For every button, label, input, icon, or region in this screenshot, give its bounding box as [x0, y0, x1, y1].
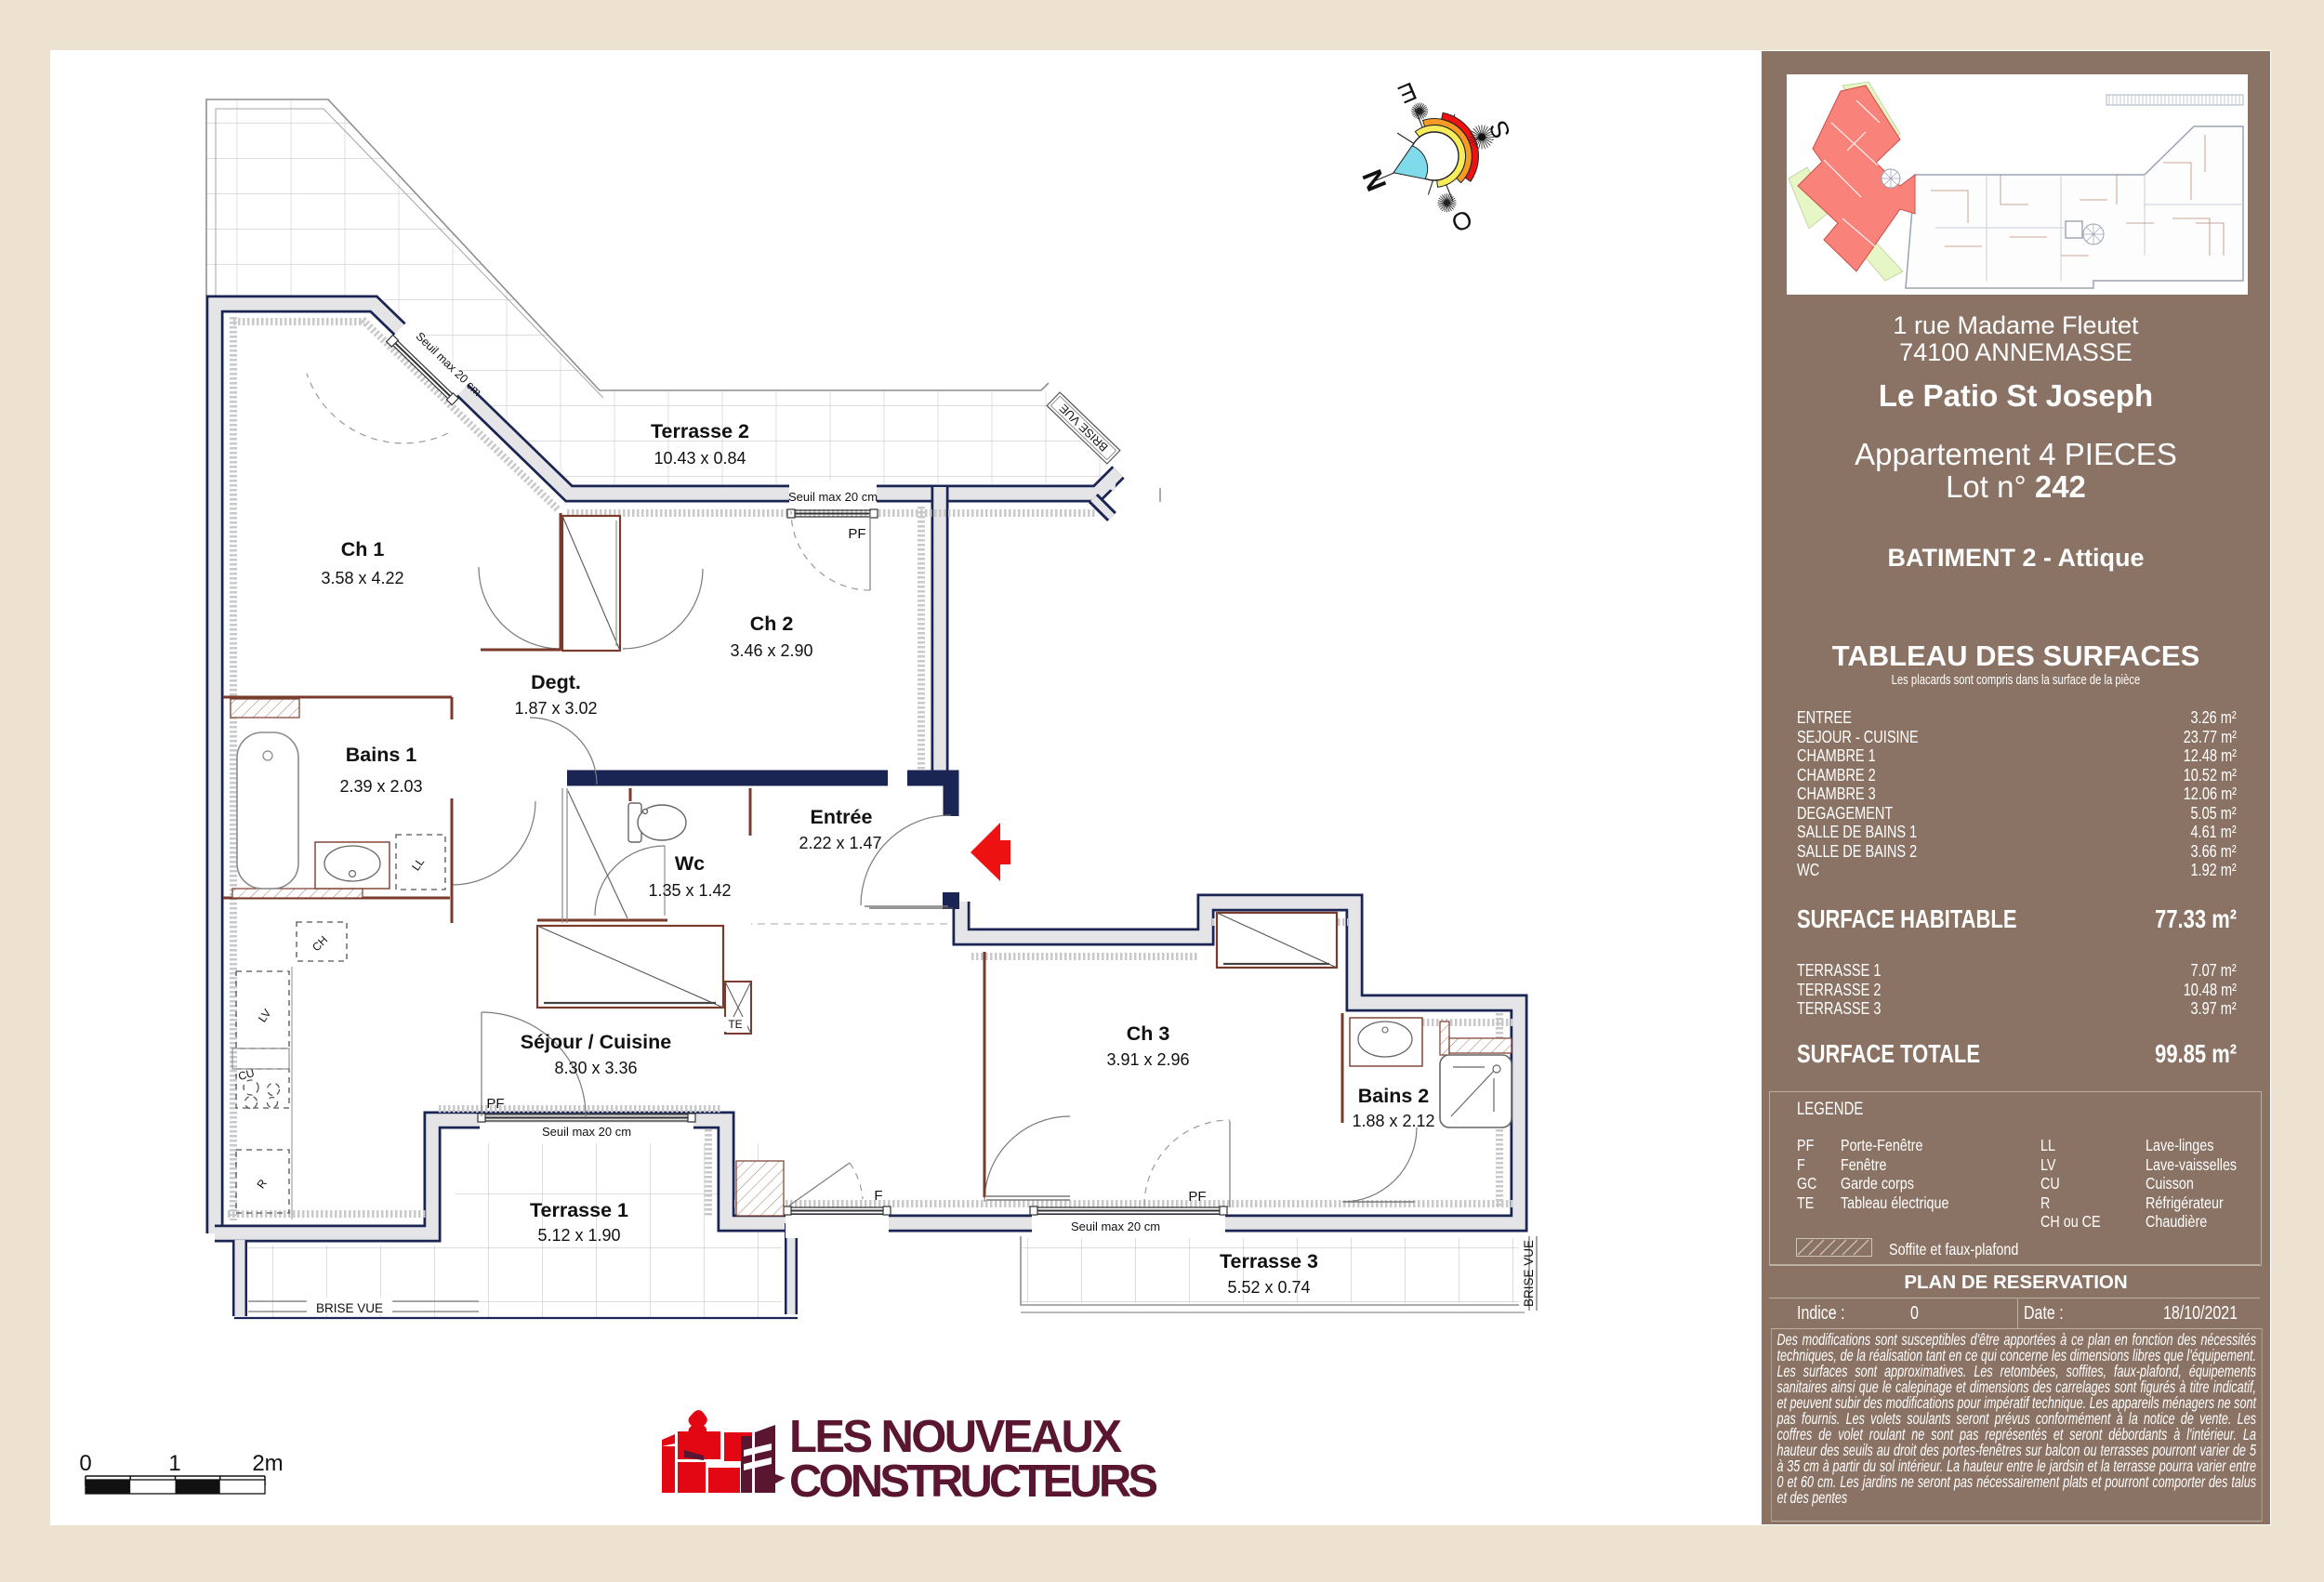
svg-text:R: R [255, 1177, 271, 1191]
svg-text:PF: PF [486, 1096, 504, 1112]
svg-text:BRISE VUE: BRISE VUE [1522, 1240, 1536, 1307]
svg-text:CU: CU [237, 1066, 256, 1083]
svg-text:Seuil max 20 cm: Seuil max 20 cm [1071, 1219, 1160, 1233]
svg-text:8.30 x 3.36: 8.30 x 3.36 [554, 1059, 637, 1077]
svg-text:3.91 x 2.96: 3.91 x 2.96 [1106, 1050, 1189, 1069]
svg-text:LV: LV [256, 1007, 273, 1024]
svg-text:1.88 x 2.12: 1.88 x 2.12 [1352, 1112, 1434, 1130]
svg-text:CONSTRUCTEURS: CONSTRUCTEURS [789, 1457, 1157, 1507]
svg-text:5.12 x 1.90: 5.12 x 1.90 [537, 1226, 620, 1245]
svg-text:1.35 x 1.42: 1.35 x 1.42 [648, 881, 731, 900]
svg-text:CH: CH [310, 933, 330, 954]
svg-text:PF: PF [848, 526, 865, 542]
svg-text:PF: PF [1188, 1189, 1206, 1205]
svg-text:E: E [1394, 76, 1420, 109]
svg-text:Bains 1: Bains 1 [346, 744, 417, 766]
svg-text:5.52 x 0.74: 5.52 x 0.74 [1227, 1278, 1310, 1297]
svg-text:3.46 x 2.90: 3.46 x 2.90 [730, 641, 812, 660]
svg-text:10.43 x 0.84: 10.43 x 0.84 [654, 449, 746, 468]
svg-text:O: O [1447, 204, 1476, 238]
svg-text:2.39 x 2.03: 2.39 x 2.03 [339, 777, 422, 796]
svg-text:1: 1 [168, 1451, 180, 1476]
svg-text:Seuil max 20 cm: Seuil max 20 cm [542, 1125, 631, 1139]
svg-text:3.58 x 4.22: 3.58 x 4.22 [321, 569, 403, 587]
svg-text:Terrasse 2: Terrasse 2 [651, 420, 749, 442]
svg-text:Seuil max 20 cm: Seuil max 20 cm [788, 490, 878, 504]
svg-text:Wc: Wc [675, 852, 705, 875]
svg-text:Degt.: Degt. [531, 671, 581, 693]
svg-text:1.87 x 3.02: 1.87 x 3.02 [514, 699, 597, 718]
svg-text:2m: 2m [252, 1451, 283, 1476]
svg-text:F: F [874, 1188, 882, 1204]
svg-text:N: N [1355, 165, 1392, 195]
svg-text:LL: LL [409, 855, 427, 873]
svg-text:2.22 x 1.47: 2.22 x 1.47 [799, 834, 881, 852]
svg-text:Séjour / Cuisine: Séjour / Cuisine [521, 1031, 672, 1053]
svg-text:Ch 3: Ch 3 [1127, 1022, 1170, 1045]
svg-text:Entrée: Entrée [811, 806, 873, 828]
svg-text:BRISE VUE: BRISE VUE [316, 1301, 383, 1315]
svg-text:Terrasse 1: Terrasse 1 [530, 1199, 628, 1221]
svg-text:0: 0 [79, 1451, 91, 1476]
svg-text:Ch 1: Ch 1 [341, 538, 385, 560]
svg-text:Terrasse 3: Terrasse 3 [1220, 1250, 1318, 1272]
svg-text:Ch 2: Ch 2 [750, 613, 794, 635]
svg-text:TE: TE [728, 1018, 742, 1031]
svg-text:Bains 2: Bains 2 [1358, 1085, 1430, 1107]
svg-text:LES NOUVEAUX: LES NOUVEAUX [789, 1412, 1122, 1462]
